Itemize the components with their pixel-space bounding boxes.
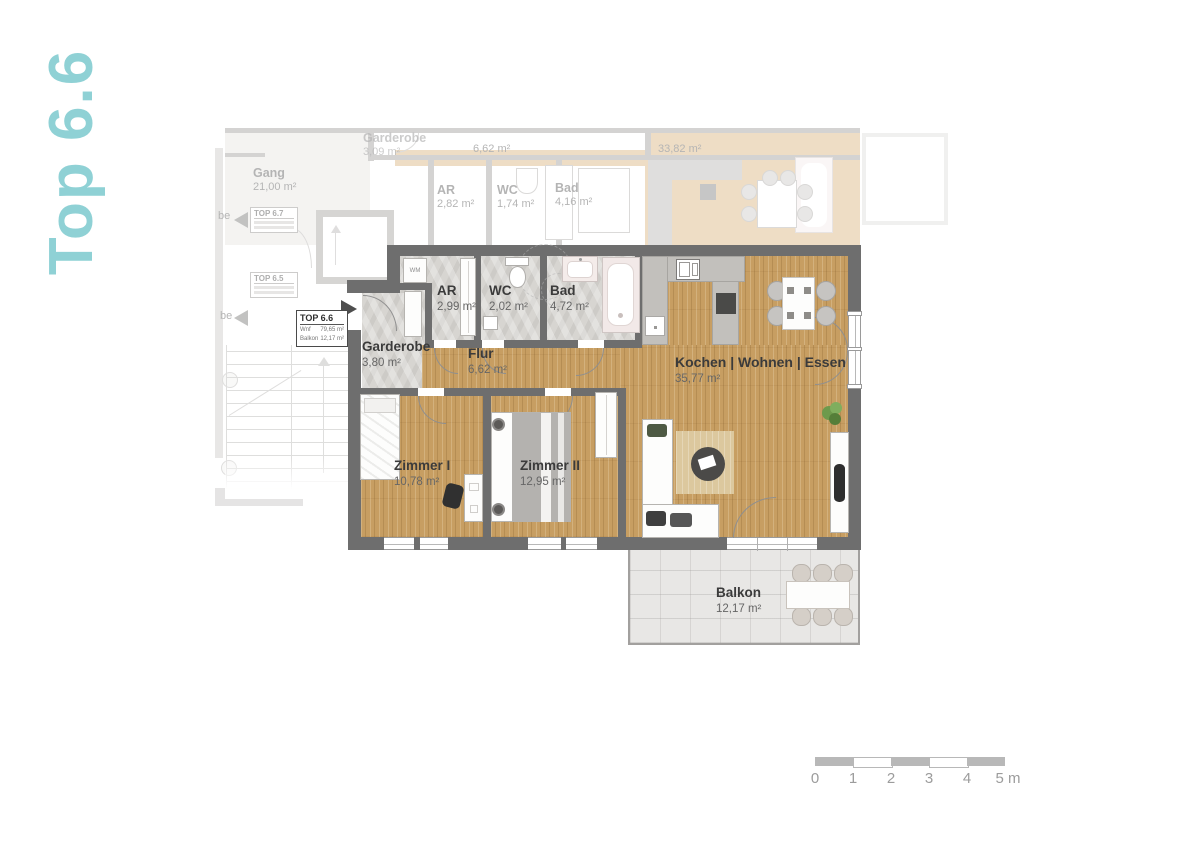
bed2-knob <box>492 503 505 516</box>
room-label-zimmer2: Zimmer II 12,95 m² <box>520 458 580 489</box>
page-title: Top 6.6 <box>30 10 114 314</box>
door-opening-bad <box>578 340 604 348</box>
toilet-tank <box>505 257 529 266</box>
window-zimmer2-a <box>528 537 561 550</box>
balcony-chair <box>792 607 811 626</box>
balcony-table <box>786 581 850 609</box>
room-area: 10,78 m² <box>394 475 450 489</box>
coffee-table <box>691 447 725 481</box>
scale-tick: 2 <box>887 770 895 787</box>
bed2-knob <box>492 418 505 431</box>
room-name: Bad <box>550 283 589 300</box>
window-zimmer1-a <box>384 537 414 550</box>
kitchen-sink <box>676 259 700 280</box>
wall-nook-h <box>387 283 432 290</box>
room-label-balkon: Balkon 12,17 m² <box>716 585 761 616</box>
scale-tick: 4 <box>963 770 971 787</box>
unit-info-row-value: 79,65 m² <box>320 326 344 335</box>
room-name: Flur <box>468 346 507 363</box>
unit-info-row-value: 12,17 m² <box>320 335 344 344</box>
unit-info-row-label: Balkon <box>300 335 318 344</box>
door-frame-mark <box>847 347 862 351</box>
unit-info-row: Wnf 79,65 m² <box>300 326 344 335</box>
wall-garderobe-ar <box>425 290 432 340</box>
room-label-garderobe: Garderobe 3,80 m² <box>362 339 430 370</box>
scale-segment <box>815 757 853 766</box>
room-name: Kochen | Wohnen | Essen <box>675 354 846 372</box>
room-name: WC <box>489 283 528 300</box>
unit-info-title: TOP 6.6 <box>300 313 344 325</box>
room-name: Garderobe <box>362 339 430 356</box>
unit-info-row: Balkon 12,17 m² <box>300 335 344 344</box>
room-area: 2,99 m² <box>437 300 476 314</box>
wall-zimmer1-zimmer2 <box>483 396 491 537</box>
wall-flur-top <box>425 340 642 348</box>
wardrobe-zimmer2 <box>595 392 617 458</box>
sofa-cushion <box>670 513 692 527</box>
scale-segment <box>967 757 1005 766</box>
door-frame-mark <box>847 384 862 389</box>
balcony-chair <box>813 607 832 626</box>
door-opening-zimmer2 <box>545 388 571 396</box>
unit-info-row-label: Wnf <box>300 326 311 335</box>
window-zimmer2-b <box>566 537 597 550</box>
room-name: AR <box>437 283 476 300</box>
unit-info-box: TOP 6.6 Wnf 79,65 m² Balkon 12,17 m² <box>296 310 348 347</box>
room-area: 2,02 m² <box>489 300 528 314</box>
room-area: 6,62 m² <box>468 363 507 377</box>
room-name: Balkon <box>716 585 761 602</box>
sofa-cushion <box>646 511 666 526</box>
balcony-door <box>727 537 817 550</box>
scale-segment <box>853 757 893 768</box>
room-label-ar: AR 2,99 m² <box>437 283 476 314</box>
scale-segment <box>891 757 929 766</box>
window-zimmer1-b <box>420 537 448 550</box>
door-opening-zimmer1 <box>418 388 444 396</box>
dishwasher <box>645 316 665 336</box>
wall-top <box>387 245 861 256</box>
room-area: 3,80 m² <box>362 356 430 370</box>
scale-tick: 3 <box>925 770 933 787</box>
desk-zimmer1 <box>464 474 483 522</box>
stove <box>716 293 736 314</box>
room-name: Zimmer II <box>520 458 580 475</box>
scale-bar: 0 1 2 3 4 5 m <box>815 757 1015 793</box>
wall-nook-v <box>387 256 400 283</box>
bad-sink <box>562 256 598 282</box>
washing-machine-label: WM <box>410 268 421 274</box>
scale-segment <box>929 757 969 768</box>
dining-chair <box>816 281 836 301</box>
dining-chair <box>816 306 836 326</box>
scale-tick: 1 <box>849 770 857 787</box>
room-label-flur: Flur 6,62 m² <box>468 346 507 377</box>
room-area: 12,95 m² <box>520 475 580 489</box>
room-area: 12,17 m² <box>716 602 761 616</box>
wall-right-lower <box>848 385 861 545</box>
washing-machine: WM <box>403 258 427 283</box>
balcony-chair <box>834 607 853 626</box>
wall-right-upper <box>848 256 861 315</box>
room-area: 4,72 m² <box>550 300 589 314</box>
apartment-plan: WM <box>0 0 1200 848</box>
room-label-kochen-wohnen-essen: Kochen | Wohnen | Essen 35,77 m² <box>675 354 846 386</box>
tv <box>834 464 845 502</box>
room-name: Zimmer I <box>394 458 450 475</box>
garderobe-closet <box>404 291 422 337</box>
room-area: 35,77 m² <box>675 372 846 386</box>
scale-tick: 0 <box>811 770 819 787</box>
room-label-wc: WC 2,02 m² <box>489 283 528 314</box>
wall-zimmer2-living <box>618 388 626 538</box>
door-opening-ar <box>434 340 456 348</box>
bathtub <box>602 257 640 333</box>
sofa-cushion <box>647 424 667 437</box>
door-frame-mark <box>847 311 862 316</box>
plant <box>820 402 844 426</box>
dining-table <box>782 277 815 330</box>
wc-sink <box>483 316 498 330</box>
room-label-bad: Bad 4,72 m² <box>550 283 589 314</box>
scale-tick: 5 m <box>995 770 1020 787</box>
room-label-zimmer1: Zimmer I 10,78 m² <box>394 458 450 489</box>
floorplan-page: { "page": { "title_vertical": "Top 6.6" … <box>0 0 1200 848</box>
